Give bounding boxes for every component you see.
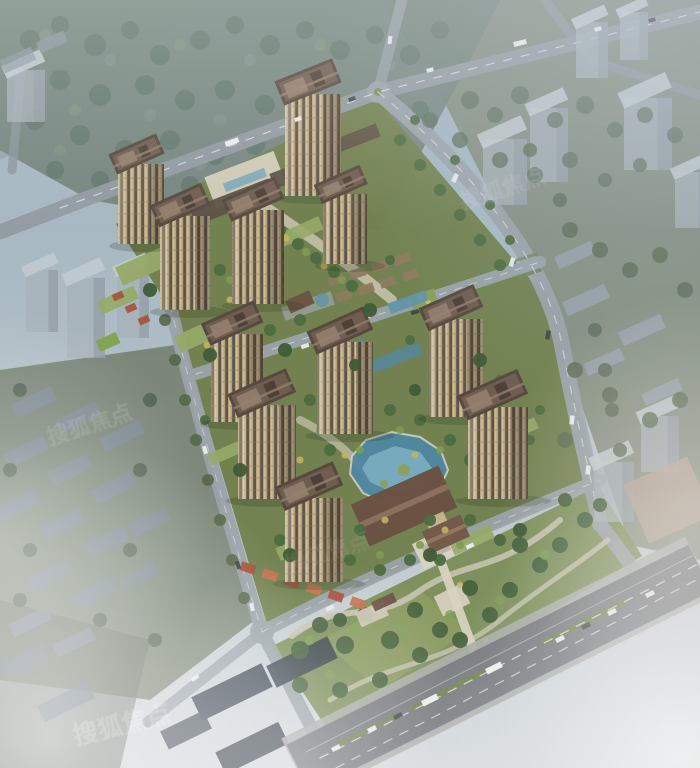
fog-left xyxy=(0,0,700,768)
scene-layers: 搜狐焦点搜狐焦点搜狐焦点搜狐焦点 xyxy=(0,0,700,768)
layer-atmosphere xyxy=(0,0,700,768)
aerial-masterplan-render: 搜狐焦点搜狐焦点搜狐焦点搜狐焦点 xyxy=(0,0,700,768)
render-canvas: 搜狐焦点搜狐焦点搜狐焦点搜狐焦点 xyxy=(0,0,700,768)
